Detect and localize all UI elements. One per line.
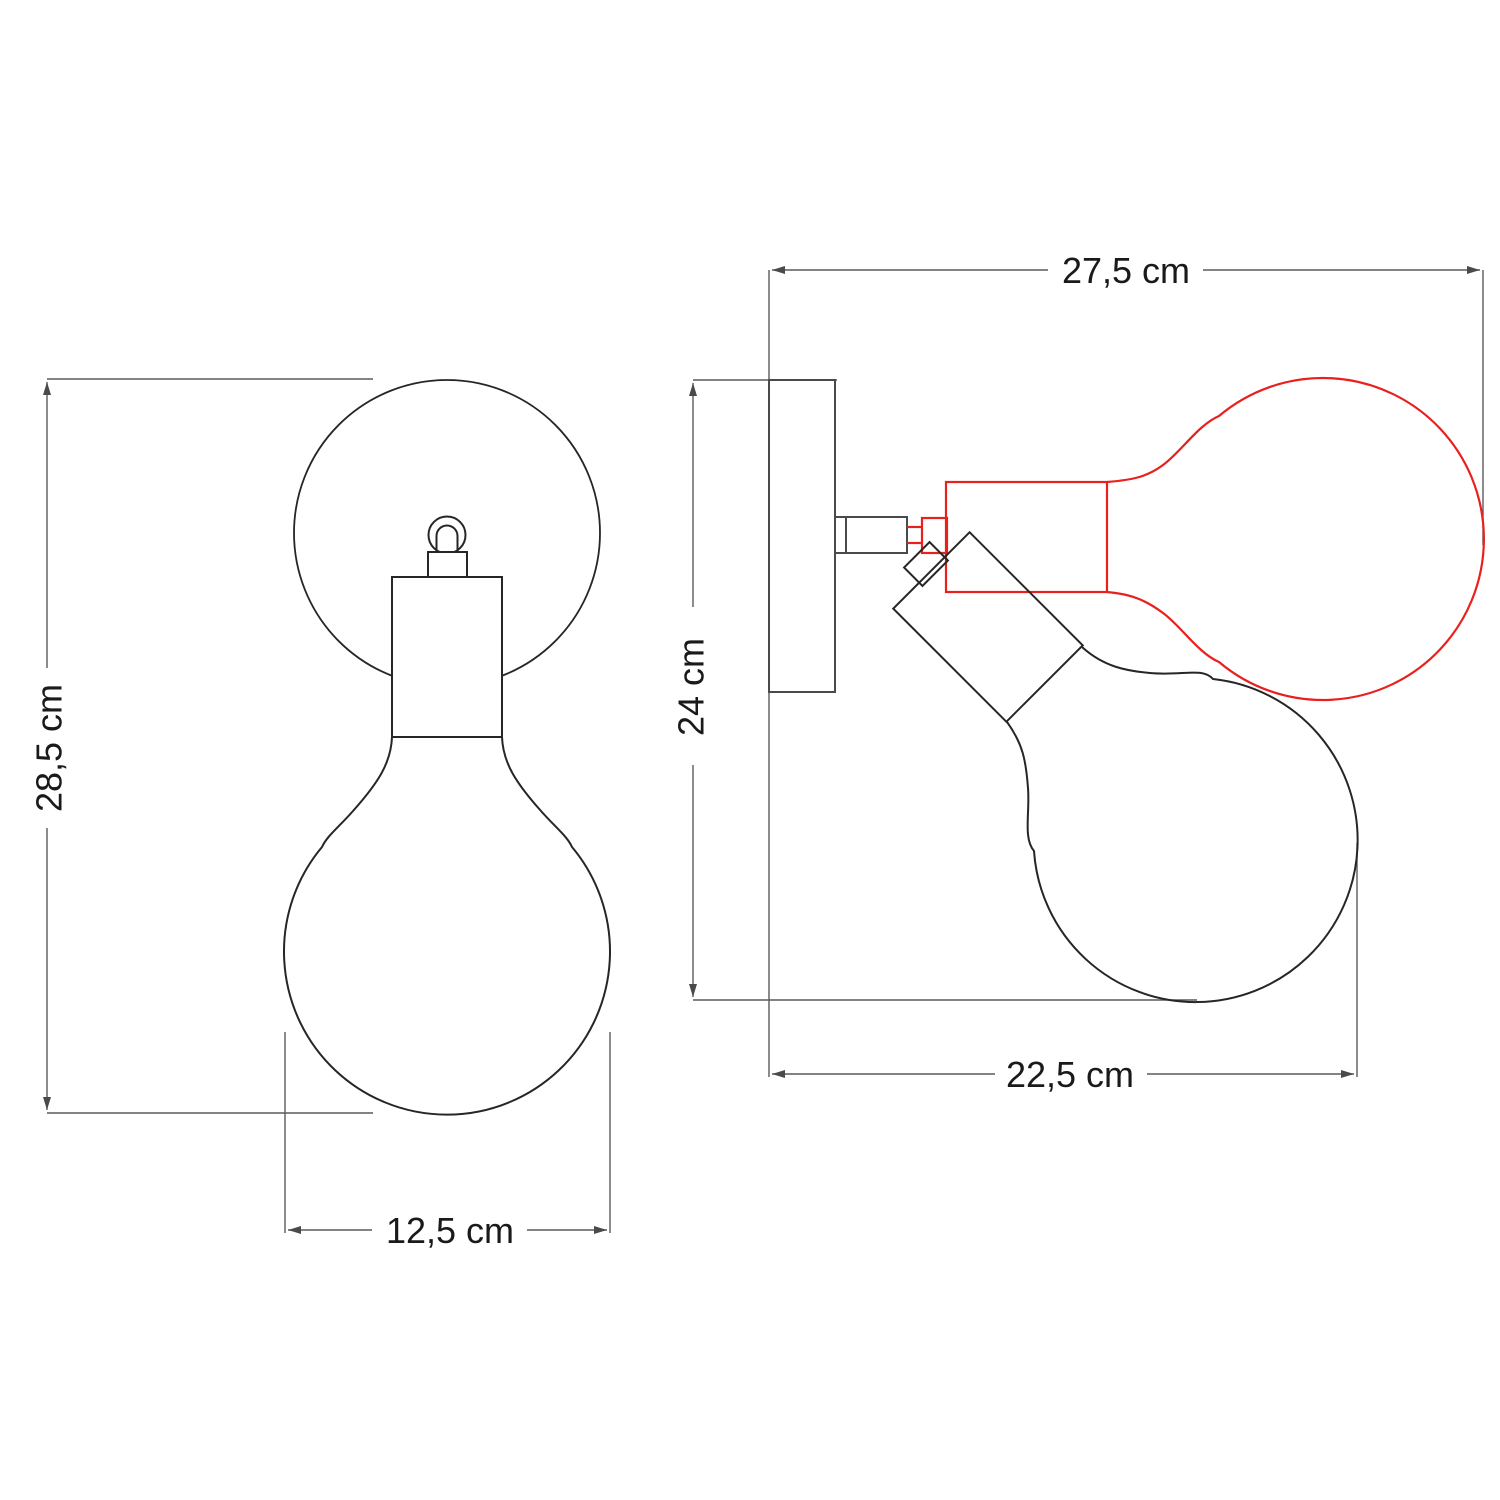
hanging-ring-inner [437,526,458,554]
hinge-bracket [904,542,948,586]
hanging-ring-outer [429,517,466,554]
wall-plate-side [769,380,835,692]
front-height-label: 28,5 cm [29,684,70,812]
dimension-lines [47,270,1483,1233]
side-view-lamp [893,532,1357,1002]
light-bulb-side [1007,647,1358,1002]
wall-lamp-dimension-diagram: 28,5 cm 12,5 cm 27,5 cm 24 cm 22,5 cm [0,0,1500,1500]
alt-lamp-socket-side [946,482,1107,592]
side-width-label: 27,5 cm [1062,250,1190,291]
light-bulb-front [284,737,610,1115]
socket-nipple-front [428,552,467,577]
side-projection-label: 22,5 cm [1006,1054,1134,1095]
front-view [284,380,610,1115]
side-view-alternate-position [907,378,1484,700]
lamp-socket-front [392,577,502,737]
dimension-diagram-page: 28,5 cm 12,5 cm 27,5 cm 24 cm 22,5 cm [0,0,1500,1500]
front-width-label: 12,5 cm [386,1210,514,1251]
lamp-socket-side [893,532,1083,722]
side-height-label: 24 cm [671,638,712,736]
alt-light-bulb-side [1107,378,1484,700]
side-view-hardware [769,380,907,692]
